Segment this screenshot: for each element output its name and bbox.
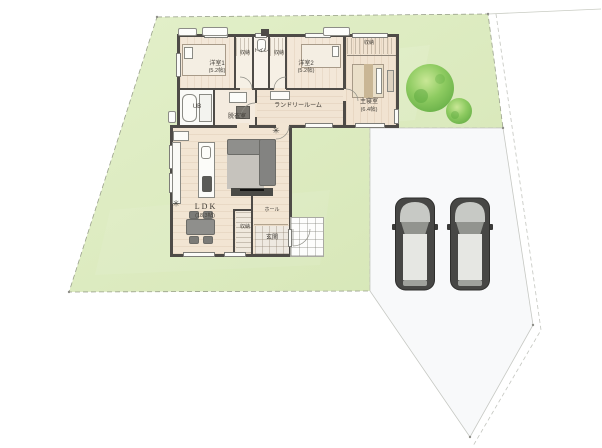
tree-large (406, 64, 454, 112)
label-entrance: 玄関 (266, 235, 278, 241)
label-ldk-storage: 収納 (240, 224, 250, 230)
label-ldk-size: (18.3帖) (195, 213, 215, 219)
master-closet-line (347, 55, 396, 56)
wall-segment (268, 37, 270, 89)
car-left (392, 198, 438, 290)
wall-segment (213, 90, 215, 125)
window (352, 33, 388, 38)
window (176, 53, 181, 77)
wall-segment (233, 209, 253, 211)
bay-eave (202, 27, 228, 36)
wall-segment (251, 195, 253, 254)
plant-icon: ✳ (172, 200, 180, 209)
door-opening (237, 123, 249, 132)
label-bedroom2: 洋室2 (298, 61, 313, 67)
floor-plan-canvas: ✳ ✳ 洋室1 (5.2帖) 収納 トイレ 収納 洋室2 (5.2帖) 収納 主… (0, 0, 602, 448)
bay-eave (178, 28, 197, 36)
window (183, 252, 215, 257)
boundary-line-top (488, 9, 601, 14)
kitchen-sink (201, 146, 211, 159)
label-laundry: ランドリールーム (274, 103, 322, 109)
dining-table (186, 219, 215, 235)
car-right (447, 198, 493, 290)
entrance-porch (290, 217, 324, 257)
label-dressing: 脱衣室 (228, 114, 246, 120)
pillow (184, 47, 193, 59)
cabinet (173, 131, 189, 141)
dining-chair (203, 236, 213, 244)
window (305, 123, 333, 128)
window (224, 252, 246, 257)
wall-segment (343, 101, 346, 125)
window (355, 123, 385, 128)
sofa-chaise (259, 139, 276, 186)
ac-unit (168, 111, 176, 123)
wall-segment (285, 37, 287, 89)
kitchen-counter (172, 142, 181, 204)
label-closet-right: 収納 (274, 50, 284, 56)
label-ldk: LDK (195, 204, 217, 210)
wall-segment (255, 90, 257, 103)
tv-screen (240, 189, 264, 191)
genkan-step-line (254, 224, 288, 225)
bed-runner (364, 64, 373, 98)
wall-segment (252, 37, 254, 89)
label-bedroom1-size: (5.2帖) (209, 68, 226, 74)
wall-segment (286, 88, 344, 90)
ldk-closet-shelves (236, 211, 251, 253)
vanity-sink (229, 92, 247, 103)
label-toilet: トイレ (253, 48, 268, 54)
master-exterior-door (394, 109, 399, 124)
tree-small (446, 98, 472, 124)
label-closet-left: 収納 (240, 50, 250, 56)
laundry-counter (270, 91, 290, 100)
label-bath: UB (193, 104, 201, 110)
label-master-closet: 収納 (364, 40, 374, 46)
bay-eave (323, 27, 350, 36)
dining-chair (189, 236, 199, 244)
label-bedroom1: 洋室1 (209, 61, 224, 67)
plant-icon: ✳ (272, 127, 280, 136)
label-bedroom2-size: (5.2帖) (298, 68, 315, 74)
label-master-size: (6.4帖) (361, 107, 378, 113)
label-master-bedroom: 主寝室 (360, 99, 378, 105)
pillow (332, 46, 339, 57)
roof-vent (261, 29, 269, 36)
wall-segment (343, 37, 346, 89)
kitchen-stove (202, 176, 212, 192)
dresser (387, 70, 394, 92)
wall-segment (233, 209, 235, 254)
wall-segment (234, 37, 236, 89)
label-hall: ホール (264, 207, 279, 213)
entrance-door (288, 229, 292, 247)
wall-segment (180, 88, 240, 90)
pillow (376, 68, 382, 94)
wall-segment (255, 117, 257, 125)
